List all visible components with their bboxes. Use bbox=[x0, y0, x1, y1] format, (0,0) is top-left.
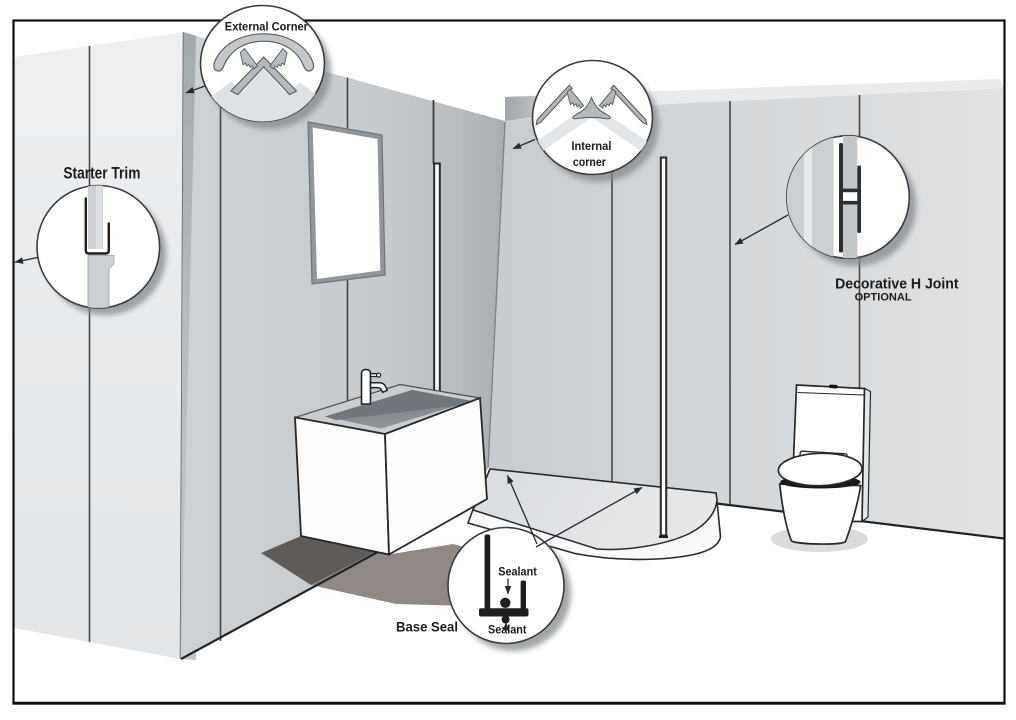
svg-text:Internal: Internal bbox=[571, 139, 611, 153]
svg-text:Sealant: Sealant bbox=[488, 623, 527, 637]
svg-text:corner: corner bbox=[573, 155, 606, 169]
svg-text:Base Seal: Base Seal bbox=[396, 620, 458, 635]
svg-text:Decorative H Joint: Decorative H Joint bbox=[835, 275, 959, 292]
svg-text:External Corner: External Corner bbox=[225, 20, 309, 33]
svg-text:Starter Trim: Starter Trim bbox=[63, 165, 140, 183]
svg-text:Sealant: Sealant bbox=[498, 565, 537, 579]
svg-text:OPTIONAL: OPTIONAL bbox=[855, 292, 912, 304]
